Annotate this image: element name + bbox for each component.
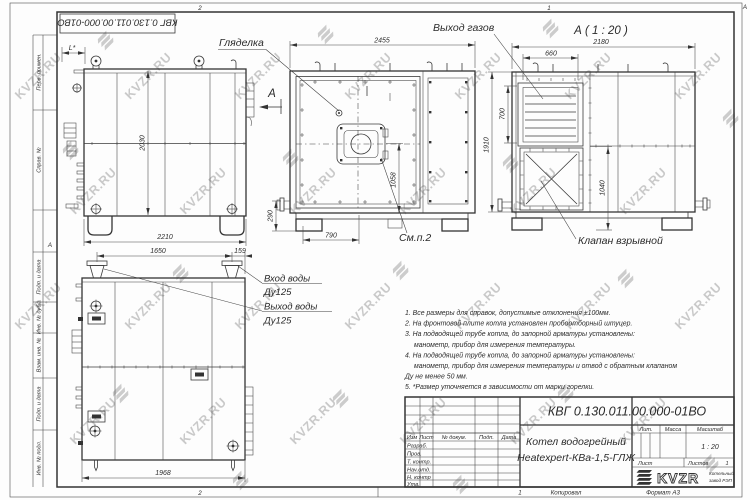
dim-1058: 1058 <box>391 172 398 188</box>
section-arrow-label: А <box>267 88 276 100</box>
dim-2180: 2180 <box>592 39 609 46</box>
margin-label-inv-dubl: Инв. № дубл. <box>37 300 43 334</box>
scale-label: Масштаб <box>697 427 724 433</box>
note-line-3: 3. На подводящей трубе котла, до запорно… <box>405 330 635 338</box>
row-tkontr: Т. контр. <box>407 460 431 466</box>
logo-sub-2: завод РЭП <box>708 478 733 483</box>
dim-290: 290 <box>268 210 275 223</box>
view-top: 1650 159 1968 Вход воды Ду125 Выход воды… <box>72 248 332 482</box>
fold-mark-bottom-left: 2 <box>197 490 202 497</box>
col-podp: Подп. <box>479 435 494 441</box>
watermark-text: KVZR.RU <box>397 165 449 217</box>
product-name-2: Heatexpert-КВа-1,5-ГЛЖ <box>517 452 636 464</box>
dim-2030: 2030 <box>140 135 147 152</box>
note-line-1: 1. Все размеры для справок, допустимые о… <box>405 309 611 317</box>
row-razrab: Разраб. <box>407 444 427 450</box>
dim-159: 159 <box>234 248 246 255</box>
fold-mark-top-right: 1 <box>547 5 550 12</box>
watermark-text: KVZR.RU <box>287 165 339 217</box>
watermark-text: KVZR.RU <box>342 280 394 332</box>
margin-label-sprav: Справ. № <box>37 147 43 172</box>
sheet-label: Лист <box>637 461 653 467</box>
dim-700: 700 <box>500 108 507 120</box>
note-line-7: Ду не менее 50 мм. <box>404 374 468 381</box>
note-line-4: манометр, прибор для измерения температу… <box>414 341 576 349</box>
row-prov: Пров. <box>407 452 422 458</box>
margin-label-perv: Перв. примен. <box>37 53 43 90</box>
explosion-valve-label: Клапан взрывной <box>578 235 663 247</box>
watermark-text: KVZR.RU <box>672 280 724 332</box>
water-inlet-dn: Ду125 <box>263 287 292 298</box>
kvzr-logo: KVZR Котельный завод РЭП <box>637 470 735 486</box>
stamp-doc-number: КВГ 0.130.011.00.000-01ВО <box>57 17 178 28</box>
logo-sub-1: Котельный <box>709 470 734 476</box>
dim-1650: 1650 <box>150 248 166 255</box>
sheets-label: Листов <box>687 461 708 467</box>
watermark-text: KVZR.RU <box>177 395 229 447</box>
watermark-text: KVZR.RU <box>617 165 669 217</box>
mass-label: Масса <box>665 427 682 433</box>
watermark-text: KVZR.RU <box>507 165 559 217</box>
margin-label-inv-podl: Инв. № подл. <box>37 441 43 476</box>
watermark-text: KVZR.RU <box>452 50 504 102</box>
watermark-text: KVZR.RU <box>67 395 119 447</box>
footer-copy: Копировал <box>551 490 582 497</box>
engineering-drawing: KVZR.RU KVZR.RU KVZR.RU KVZR.RU KVZR.RU … <box>0 0 750 500</box>
row-nachotd: Нач.отд. <box>407 468 431 474</box>
kvzr-watermark-layer: KVZR.RU KVZR.RU KVZR.RU KVZR.RU KVZR.RU … <box>12 19 740 495</box>
note-line-6: манометр, прибор для измерения температу… <box>414 362 677 370</box>
footer-format: Формат А3 <box>646 490 680 497</box>
drawing-sheet: KVZR.RU KVZR.RU KVZR.RU KVZR.RU KVZR.RU … <box>0 0 750 500</box>
view-a-title: А ( 1 : 20 ) <box>573 25 628 37</box>
lit-label: Лит. <box>638 427 652 433</box>
dim-1968: 1968 <box>155 470 171 477</box>
col-list: Лист <box>418 435 434 441</box>
water-outlet-dn: Ду125 <box>263 316 292 327</box>
note-line-2: 2. На фронтовой плите котла установлен п… <box>404 320 632 328</box>
margin-label-podp1: Подп. и дата <box>37 259 43 294</box>
water-inlet-label: Вход воды <box>264 274 310 285</box>
margin-label-podp2: Подп. и дата <box>37 386 43 421</box>
watermark-text: KVZR.RU <box>67 165 119 217</box>
dim-L: L* <box>69 45 76 52</box>
product-name-1: Котел водогрейный <box>526 436 626 448</box>
watermark-text: KVZR.RU <box>122 280 174 332</box>
dim-1040: 1040 <box>600 180 607 196</box>
fold-mark-left-letter: А <box>47 242 52 249</box>
watermark-text: KVZR.RU <box>287 395 339 447</box>
row-nkontr: Н. контр <box>407 475 431 481</box>
note-line-8: 5. *Размер уточняется в зависимости от м… <box>405 384 594 391</box>
dim-1910: 1910 <box>484 137 491 153</box>
fold-mark-top-left: 2 <box>197 5 202 12</box>
sheets-value: 1 <box>725 461 728 467</box>
watermark-text: KVZR.RU <box>177 165 229 217</box>
dim-2210: 2210 <box>156 234 173 241</box>
row-utv: Утв. <box>406 482 420 488</box>
margin-label-vzam: Взам. инв. № <box>37 338 43 373</box>
dim-660: 660 <box>545 51 557 58</box>
water-outlet-label: Выход воды <box>264 302 317 313</box>
watermark-text: KVZR.RU <box>342 50 394 102</box>
notes-block: 1. Все размеры для справок, допустимые о… <box>404 309 677 391</box>
doc-number: КВГ 0.130.011.00.000-01ВО <box>548 405 706 419</box>
scale-value: 1 : 20 <box>701 444 719 451</box>
col-izm: Изм <box>407 435 418 441</box>
dim-790: 790 <box>325 233 337 240</box>
col-data: Дата <box>501 435 517 441</box>
sight-glass-label: Гляделка <box>219 37 264 49</box>
footer-num: 1 <box>518 490 521 497</box>
col-doc: № докум. <box>442 435 467 441</box>
watermark-text: KVZR.RU <box>232 50 284 102</box>
logo-text: KVZR <box>657 470 699 486</box>
note-line-5: 4. На подводящей трубе котла, до запорно… <box>405 351 635 359</box>
dim-2455: 2455 <box>373 38 390 45</box>
see-note-label: См.п.2 <box>399 232 431 244</box>
fold-mark-right-letter: А <box>742 4 747 11</box>
gas-outlet-label: Выход газов <box>433 22 495 34</box>
